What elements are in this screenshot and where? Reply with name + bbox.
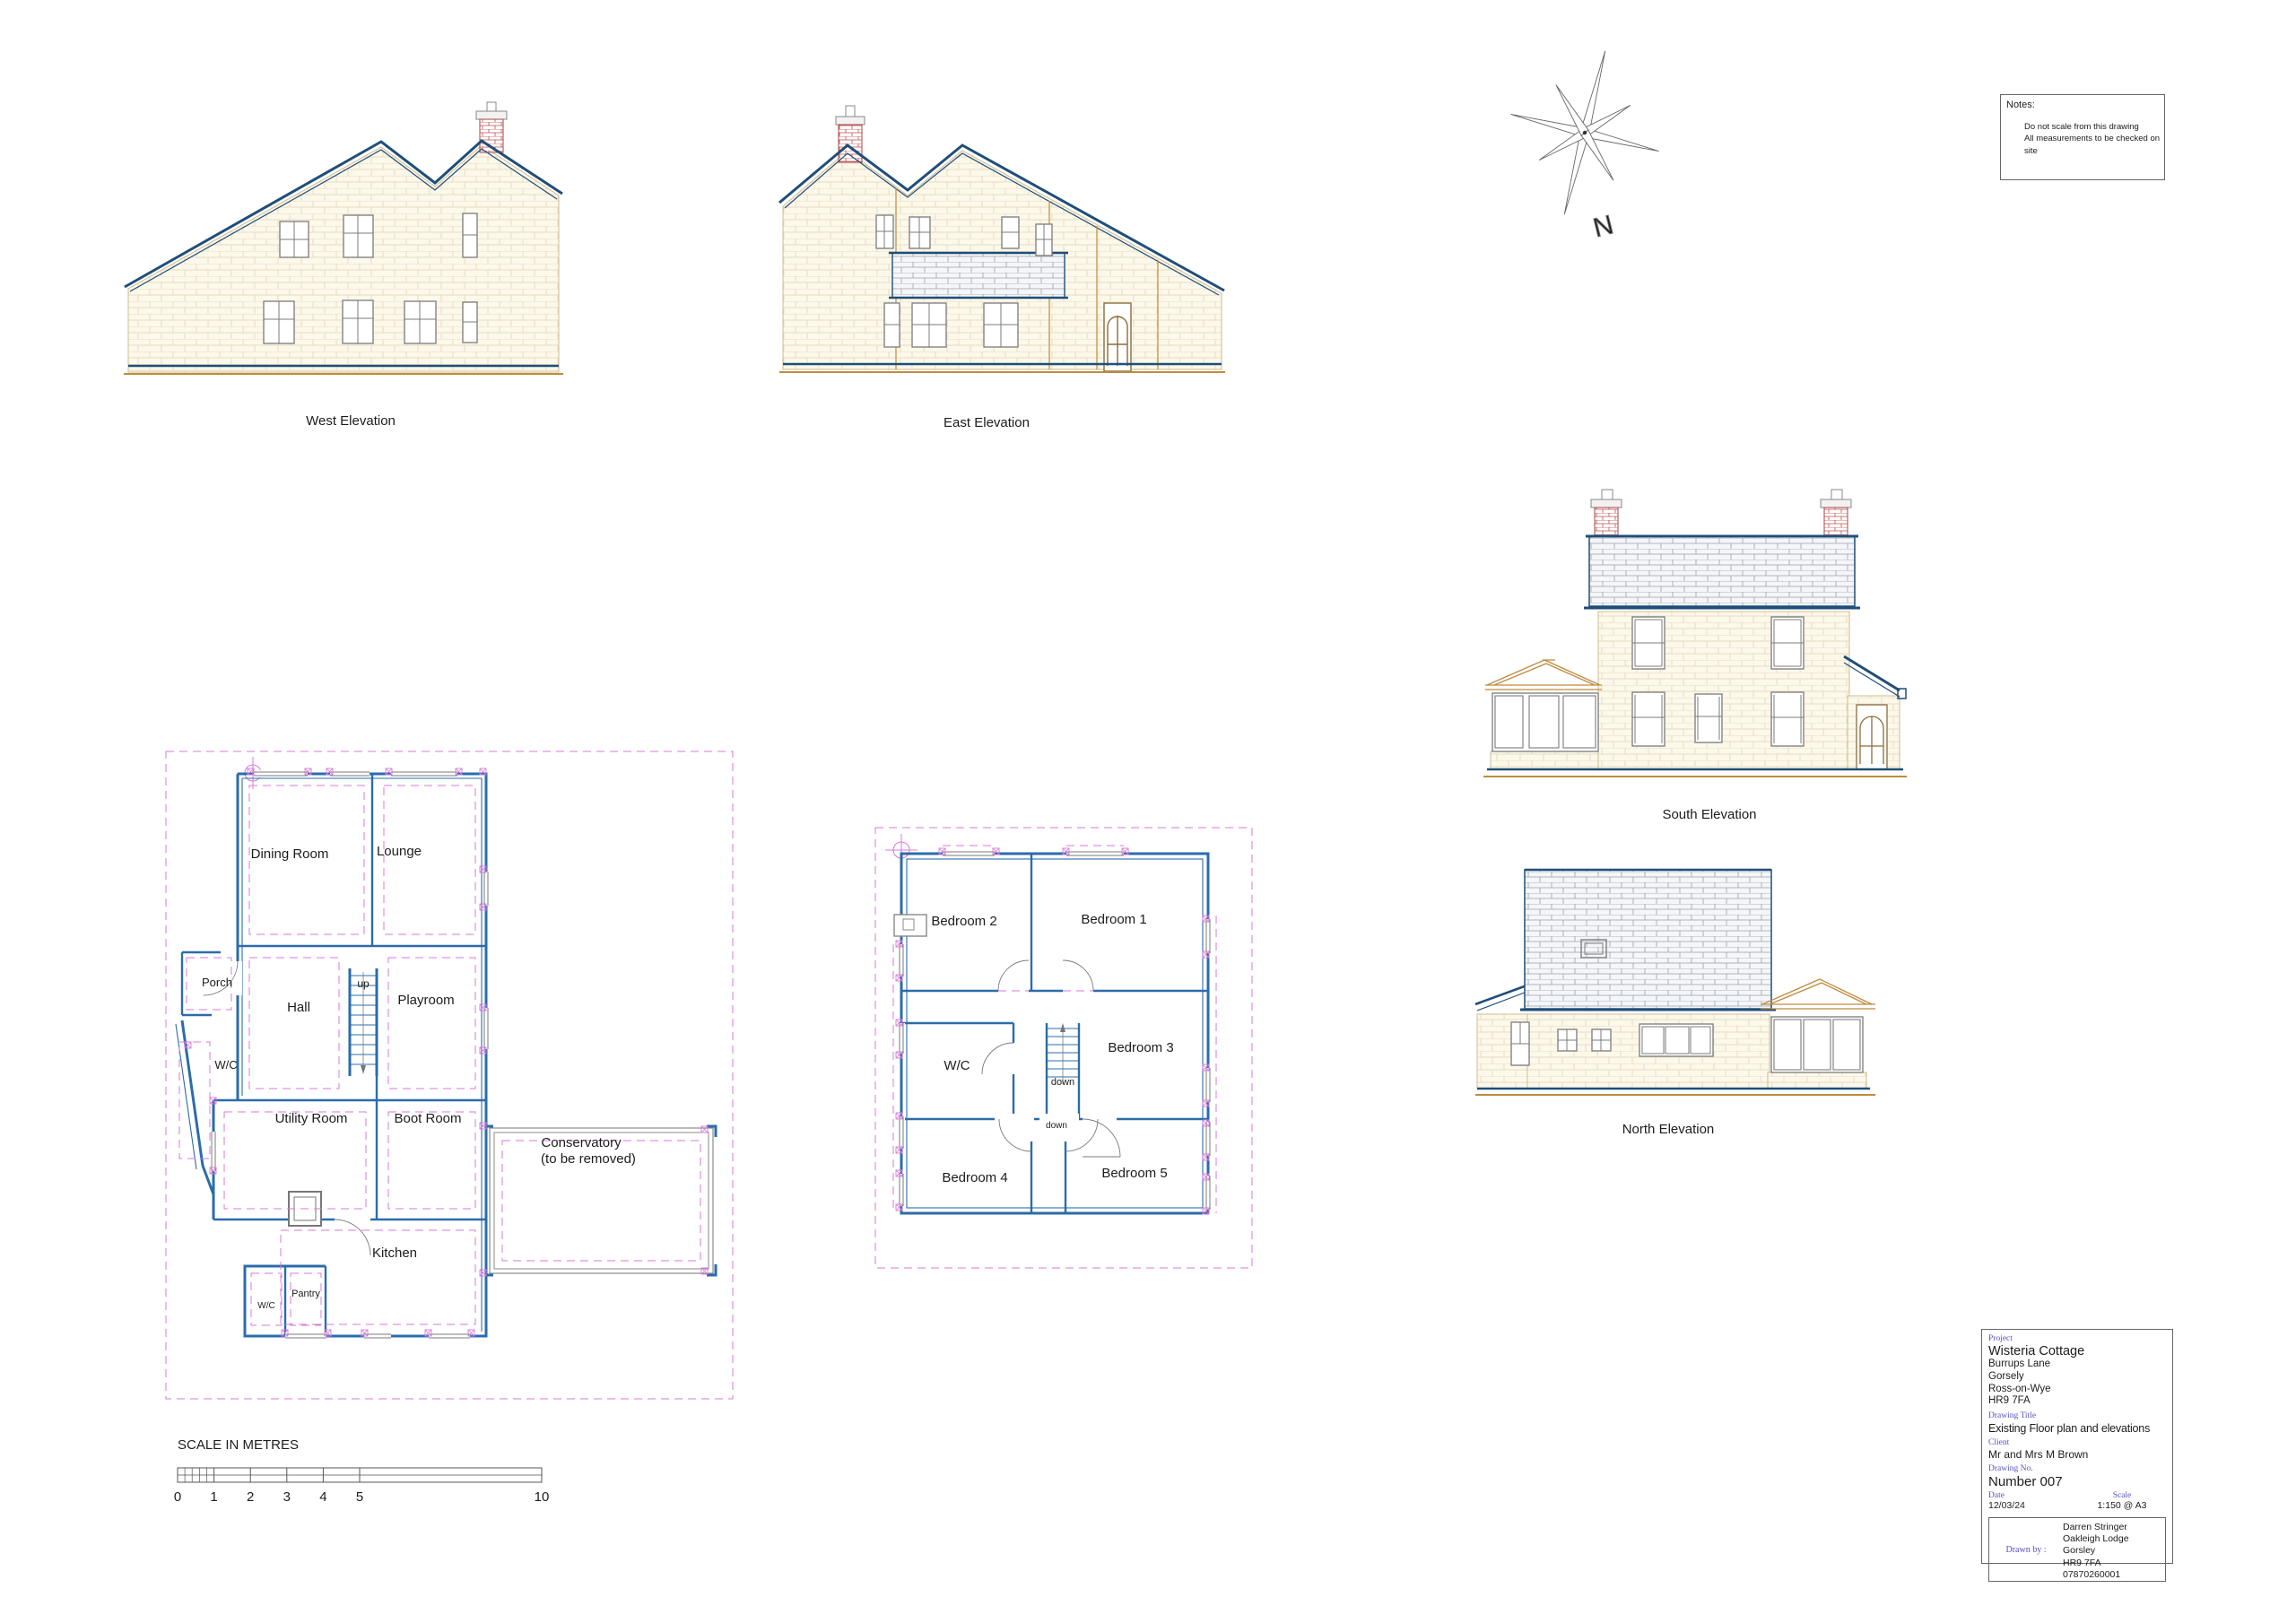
address-line-4: HR9 7FA xyxy=(1988,1395,2166,1408)
scale-value: 1:150 @ A3 xyxy=(2078,1500,2166,1511)
gf-wc-small-label: W/C xyxy=(257,1301,274,1311)
south-chimneys xyxy=(1591,490,1851,538)
north-ground-line xyxy=(1475,1089,1875,1095)
drawn-by-line-1: Darren Stringer xyxy=(2063,1522,2129,1533)
south-roof xyxy=(1584,536,1860,608)
gf-conservatory-label-1: Conservatory xyxy=(541,1135,622,1150)
scale-tick-4: 4 xyxy=(319,1489,326,1505)
drawn-by-line-5: 07870260001 xyxy=(2063,1569,2129,1581)
drawn-by-box: Drawn by : Darren Stringer Oakleigh Lodg… xyxy=(1988,1517,2166,1582)
gf-lounge-label: Lounge xyxy=(377,844,422,859)
gf-conservatory-label-2: (to be removed) xyxy=(541,1151,636,1167)
south-porch xyxy=(1844,656,1906,769)
ff-bedroom3-label: Bedroom 3 xyxy=(1108,1040,1173,1055)
west-elevation-label: West Elevation xyxy=(306,413,396,429)
notes-line-2: All measurements to be checked on site xyxy=(2024,133,2164,157)
ff-window-markers xyxy=(896,848,1209,1214)
gf-wc-label: W/C xyxy=(214,1058,237,1072)
gf-dining-room-label: Dining Room xyxy=(251,846,329,862)
ff-stair-down-label-1: down xyxy=(1051,1077,1074,1088)
notes-box: Notes: Do not scale from this drawing Al… xyxy=(2000,94,2165,180)
drawn-by-line-4: HR9 7FA xyxy=(2063,1558,2129,1569)
north-elevation-drawing: North Elevation xyxy=(1475,850,1897,1146)
address-line-1: Burrups Lane xyxy=(1988,1358,2166,1371)
gf-room-labels: Dining Room Lounge Porch Hall Playroom W… xyxy=(202,844,636,1311)
south-ground-line xyxy=(1483,769,1907,777)
west-elevation-drawing: West Elevation xyxy=(121,100,570,434)
scale-tick-2: 2 xyxy=(247,1489,254,1505)
ff-windows xyxy=(898,850,1212,1210)
ff-internal-walls xyxy=(901,854,1208,1213)
gf-playroom-label: Playroom xyxy=(397,993,454,1008)
drawing-no-label: Drawing No. xyxy=(1988,1464,2166,1473)
ff-stair-down-label-2: down xyxy=(1046,1121,1067,1131)
east-elevation-label: East Elevation xyxy=(944,415,1030,430)
ground-floor-plan: Dining Room Lounge Porch Hall Playroom W… xyxy=(160,746,743,1414)
compass-north-label: N xyxy=(1590,210,1616,243)
ff-bedroom1-label: Bedroom 1 xyxy=(1081,912,1146,927)
ff-chimney-breast xyxy=(894,915,926,936)
scale-tick-5: 5 xyxy=(356,1489,363,1505)
scale-bar: SCALE IN METRES 0 1 2 3 4 5 10 xyxy=(174,1435,569,1515)
notes-title: Notes: xyxy=(2001,95,2164,110)
ff-external-walls xyxy=(901,854,1208,1213)
ff-bedroom4-label: Bedroom 4 xyxy=(942,1170,1007,1185)
date-value: 12/03/24 xyxy=(1988,1500,2078,1511)
scale-tick-1: 1 xyxy=(210,1489,217,1505)
south-lower-windows xyxy=(1632,692,1804,746)
scale-label: Scale xyxy=(2078,1491,2166,1500)
drawing-title: Existing Floor plan and elevations xyxy=(1988,1422,2166,1435)
notes-line-1: Do not scale from this drawing xyxy=(2024,121,2164,133)
scale-bar-ticks: 0 1 2 3 4 5 10 xyxy=(174,1489,550,1505)
scale-tick-3: 3 xyxy=(283,1489,291,1505)
gf-kitchen-label: Kitchen xyxy=(372,1245,417,1261)
gf-stair-up-label: up xyxy=(357,977,370,990)
client-label: Client xyxy=(1988,1438,2166,1447)
north-elevation-label: North Elevation xyxy=(1622,1122,1715,1137)
east-door xyxy=(1104,303,1131,371)
ff-room-labels: Bedroom 2 Bedroom 1 W/C Bedroom 3 Bedroo… xyxy=(931,912,1173,1185)
north-conservatory xyxy=(1761,979,1875,1089)
scale-tick-10: 10 xyxy=(535,1489,550,1505)
ff-bedroom2-label: Bedroom 2 xyxy=(931,914,996,929)
notes-body: Do not scale from this drawing All measu… xyxy=(2024,121,2164,157)
compass-star xyxy=(1491,32,1679,233)
address-line-3: Ross-on-Wye xyxy=(1988,1384,2166,1396)
ff-boundary xyxy=(875,828,1252,1268)
scale-bar-graphic xyxy=(178,1468,542,1482)
south-elevation-drawing: South Elevation xyxy=(1480,484,1910,829)
drawn-by-line-3: Gorsley xyxy=(2063,1545,2129,1557)
title-block: Project Wisteria Cottage Burrups Lane Go… xyxy=(1981,1329,2173,1564)
gf-pantry-label: Pantry xyxy=(291,1289,320,1299)
drawing-title-label: Drawing Title xyxy=(1988,1411,2166,1420)
gf-room-outlines xyxy=(179,785,700,1325)
project-label: Project xyxy=(1988,1334,2166,1343)
client-name: Mr and Mrs M Brown xyxy=(1988,1448,2166,1461)
gf-hall-label: Hall xyxy=(287,1000,310,1015)
south-elevation-label: South Elevation xyxy=(1662,807,1756,822)
drawing-sheet: { "colors": { "roof_blue": "#1f4e79", "p… xyxy=(0,0,2296,1623)
south-conservatory xyxy=(1485,660,1602,769)
drawn-by-label: Drawn by : xyxy=(1989,1518,2063,1581)
ff-dashed-details xyxy=(893,846,1216,1213)
east-canopy xyxy=(889,253,1068,298)
drawn-by-line-2: Oakleigh Lodge xyxy=(2063,1533,2129,1545)
gf-boot-room-label: Boot Room xyxy=(394,1111,461,1126)
first-floor-plan: Bedroom 2 Bedroom 1 W/C Bedroom 3 Bedroo… xyxy=(864,819,1276,1370)
ff-bedroom5-label: Bedroom 5 xyxy=(1101,1166,1167,1181)
gf-porch-label: Porch xyxy=(202,976,232,989)
ff-wc-label: W/C xyxy=(944,1058,970,1073)
scale-bar-title: SCALE IN METRES xyxy=(178,1437,299,1453)
project-name: Wisteria Cottage xyxy=(1988,1344,2166,1358)
gf-utility-room-label: Utility Room xyxy=(275,1111,348,1126)
north-arrow-icon: N xyxy=(1500,27,1679,251)
address-line-2: Gorsely xyxy=(1988,1371,2166,1384)
north-roof xyxy=(1520,870,1776,1010)
date-label: Date xyxy=(1988,1491,2078,1500)
west-chimney xyxy=(476,102,507,152)
east-elevation-drawing: East Elevation xyxy=(767,100,1233,434)
drawn-by-details: Darren Stringer Oakleigh Lodge Gorsley H… xyxy=(2063,1518,2129,1581)
drawing-no: Number 007 xyxy=(1988,1474,2166,1489)
scale-tick-0: 0 xyxy=(174,1489,181,1505)
